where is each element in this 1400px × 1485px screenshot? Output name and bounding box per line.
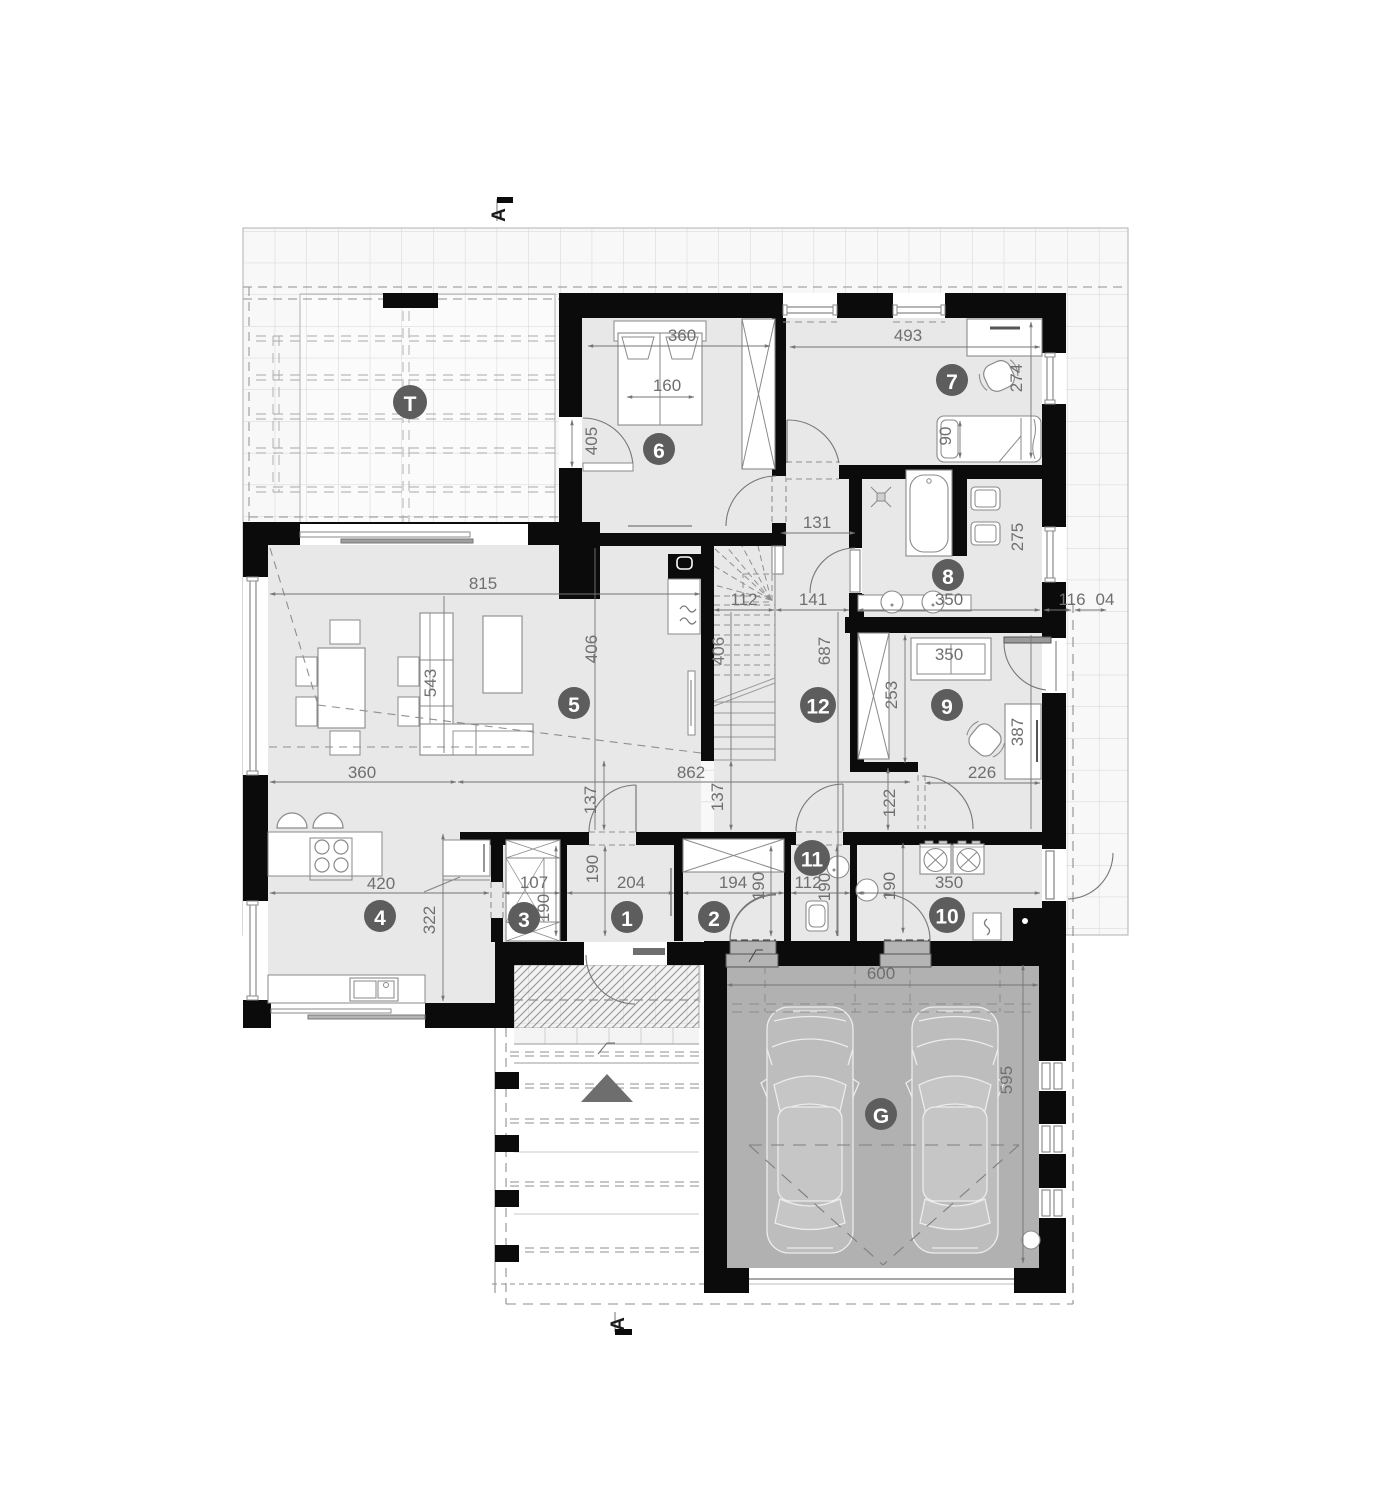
- svg-text:107: 107: [520, 873, 548, 892]
- svg-text:160: 160: [653, 376, 681, 395]
- svg-text:190: 190: [880, 872, 899, 900]
- svg-text:253: 253: [882, 681, 901, 709]
- svg-text:406: 406: [582, 635, 601, 663]
- svg-text:190: 190: [583, 855, 602, 883]
- svg-text:350: 350: [935, 873, 963, 892]
- svg-text:862: 862: [677, 763, 705, 782]
- svg-text:122: 122: [880, 789, 899, 817]
- svg-text:350: 350: [935, 645, 963, 664]
- svg-text:9: 9: [941, 696, 953, 719]
- svg-text:G: G: [873, 1105, 889, 1128]
- svg-text:11: 11: [801, 848, 824, 871]
- svg-text:3: 3: [518, 909, 530, 932]
- svg-text:137: 137: [581, 786, 600, 814]
- svg-text:194: 194: [719, 873, 747, 892]
- svg-text:5: 5: [568, 694, 580, 717]
- svg-text:190: 190: [749, 872, 768, 900]
- svg-text:204: 204: [617, 873, 645, 892]
- svg-text:112: 112: [730, 590, 757, 609]
- svg-text:600: 600: [867, 964, 895, 983]
- svg-text:687: 687: [815, 637, 834, 665]
- svg-text:137: 137: [708, 783, 727, 811]
- svg-text:815: 815: [469, 574, 497, 593]
- svg-text:04: 04: [1096, 590, 1115, 609]
- svg-text:10: 10: [935, 905, 958, 928]
- svg-text:12: 12: [806, 695, 829, 718]
- svg-text:4: 4: [374, 907, 386, 930]
- svg-text:493: 493: [894, 326, 922, 345]
- svg-text:595: 595: [997, 1066, 1016, 1094]
- svg-text:322: 322: [420, 906, 439, 934]
- svg-text:116: 116: [1058, 590, 1085, 609]
- svg-text:7: 7: [946, 371, 958, 394]
- svg-text:90: 90: [936, 427, 955, 446]
- svg-text:274: 274: [1007, 364, 1026, 392]
- svg-text:350: 350: [935, 590, 963, 609]
- svg-text:543: 543: [421, 669, 440, 697]
- svg-text:A: A: [489, 208, 510, 222]
- svg-text:420: 420: [367, 874, 395, 893]
- svg-text:131: 131: [803, 513, 831, 532]
- svg-text:406: 406: [709, 637, 728, 665]
- svg-text:387: 387: [1008, 718, 1027, 746]
- svg-text:8: 8: [942, 566, 954, 589]
- svg-text:275: 275: [1008, 523, 1027, 551]
- svg-text:141: 141: [799, 590, 827, 609]
- svg-text:1: 1: [621, 908, 633, 931]
- svg-text:T: T: [404, 393, 417, 416]
- svg-text:360: 360: [668, 326, 696, 345]
- svg-text:190: 190: [815, 873, 834, 901]
- svg-text:6: 6: [653, 440, 665, 463]
- svg-text:360: 360: [348, 763, 376, 782]
- svg-text:405: 405: [582, 427, 601, 455]
- svg-text:226: 226: [968, 763, 996, 782]
- svg-text:A: A: [608, 1317, 629, 1331]
- svg-text:2: 2: [708, 908, 720, 931]
